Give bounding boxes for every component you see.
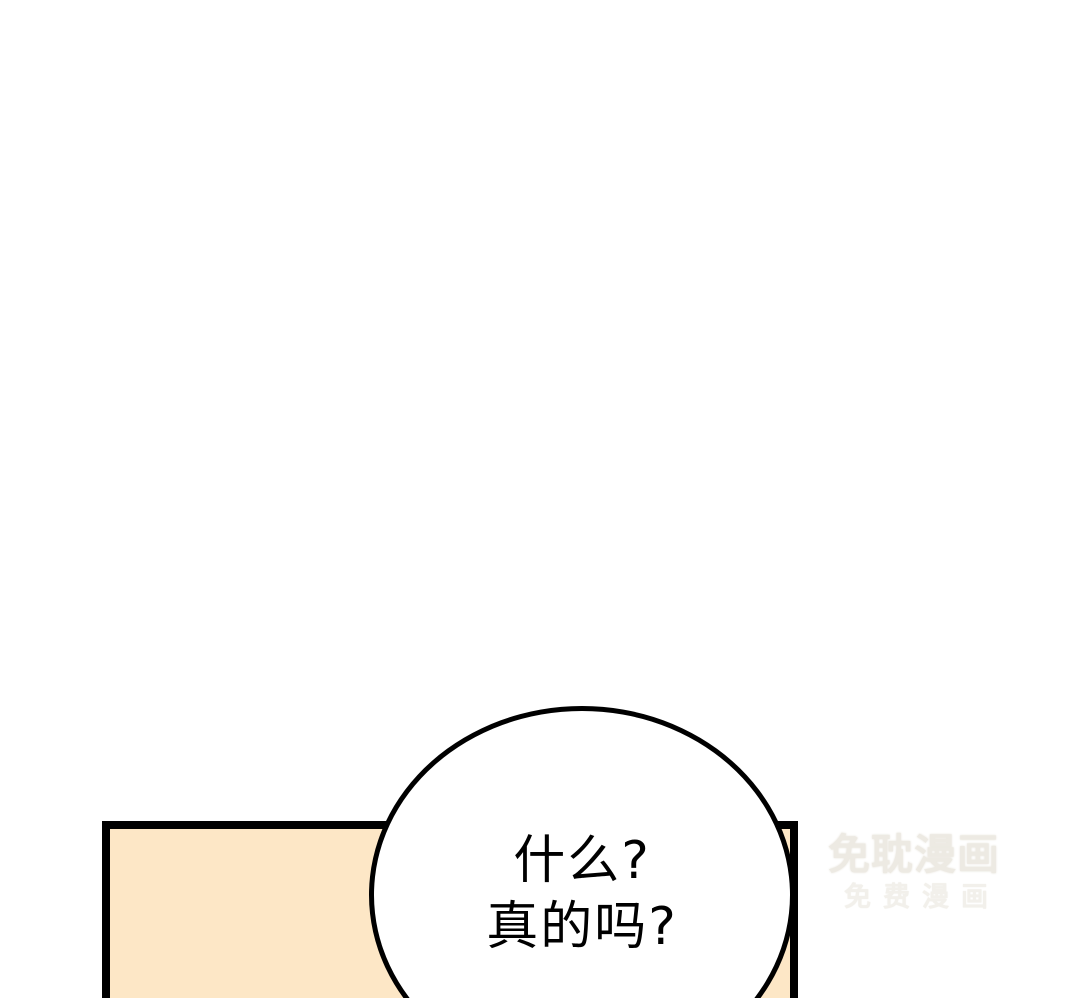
speech-bubble-text: 什么? 真的吗? xyxy=(374,828,790,960)
watermark-title: 免耽漫画 xyxy=(828,833,1028,877)
speech-line-1: 什么? xyxy=(374,828,790,894)
watermark-subtitle: 免费漫画 xyxy=(844,883,1028,913)
site-watermark: 免耽漫画 免费漫画 xyxy=(828,833,1028,913)
speech-line-2: 真的吗? xyxy=(374,894,790,960)
comic-page: 什么? 真的吗? 免耽漫画 免费漫画 xyxy=(0,0,1080,998)
speech-bubble: 什么? 真的吗? xyxy=(369,706,795,998)
